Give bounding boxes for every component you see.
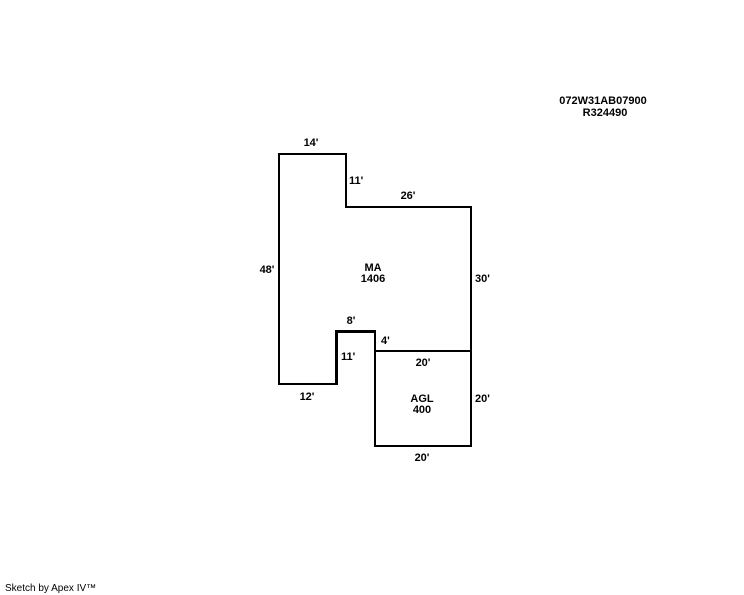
svg-text:26': 26' <box>401 190 416 202</box>
svg-text:1406: 1406 <box>361 273 385 285</box>
svg-text:20': 20' <box>475 393 490 405</box>
svg-text:8': 8' <box>347 315 356 327</box>
svg-text:20': 20' <box>416 357 431 369</box>
svg-text:12': 12' <box>300 391 315 403</box>
svg-text:4': 4' <box>381 335 390 347</box>
svg-text:14': 14' <box>304 137 319 149</box>
svg-text:20': 20' <box>415 452 430 464</box>
svg-text:400: 400 <box>413 404 431 416</box>
svg-text:11': 11' <box>341 351 356 363</box>
svg-text:Sketch by Apex IV™: Sketch by Apex IV™ <box>5 583 96 594</box>
svg-text:11': 11' <box>349 175 364 187</box>
svg-text:R324490: R324490 <box>583 107 628 119</box>
svg-text:48': 48' <box>260 264 275 276</box>
svg-text:072W31AB07900: 072W31AB07900 <box>559 95 646 107</box>
svg-text:30': 30' <box>475 273 490 285</box>
